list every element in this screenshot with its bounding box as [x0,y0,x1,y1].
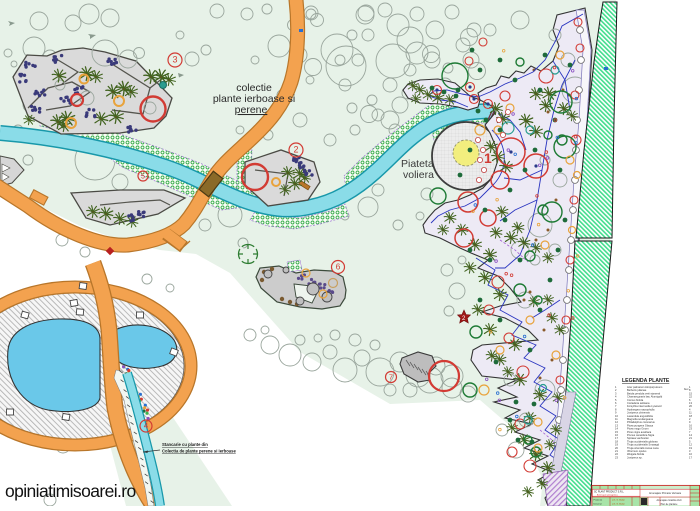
svg-text:arh. G. Balan: arh. G. Balan [612,499,626,502]
svg-text:1: 1 [484,150,492,166]
svg-text:Stancarie cu plante din: Stancarie cu plante din [162,442,208,447]
svg-text:5: 5 [141,174,145,181]
svg-text:Plan de plantare: Plan de plantare [661,503,678,506]
svg-text:arh. G. Balan: arh. G. Balan [612,503,626,506]
svg-text:voliera: voliera [403,169,434,181]
svg-text:Juniperus sp.: Juniperus sp. [627,455,643,459]
svg-text:7: 7 [389,373,393,382]
svg-text:Amenajare Gradina Verii: Amenajare Gradina Verii [656,499,682,502]
svg-text:Amenajare peisagistica: Amenajare peisagistica [597,494,619,497]
svg-text:SC PLANT PRODUCT S.R.L.: SC PLANT PRODUCT S.R.L. [594,491,625,494]
svg-text:Desenat: Desenat [594,503,603,506]
svg-text:LEGENDA PLANTE: LEGENDA PLANTE [622,378,670,384]
svg-text:opiniatimisoarei.ro: opiniatimisoarei.ro [5,481,136,501]
svg-text:perene: perene [235,104,268,116]
svg-text:2: 2 [293,145,298,155]
svg-text:Colectia de plante perene si i: Colectia de plante perene si ierboase [162,449,236,454]
svg-text:6: 6 [336,262,341,272]
svg-text:4: 4 [144,422,149,431]
svg-text:Amenajare Primarie Verioara: Amenajare Primarie Verioara [649,492,682,495]
svg-text:Proiectat: Proiectat [594,499,603,502]
svg-text:3: 3 [172,55,177,65]
